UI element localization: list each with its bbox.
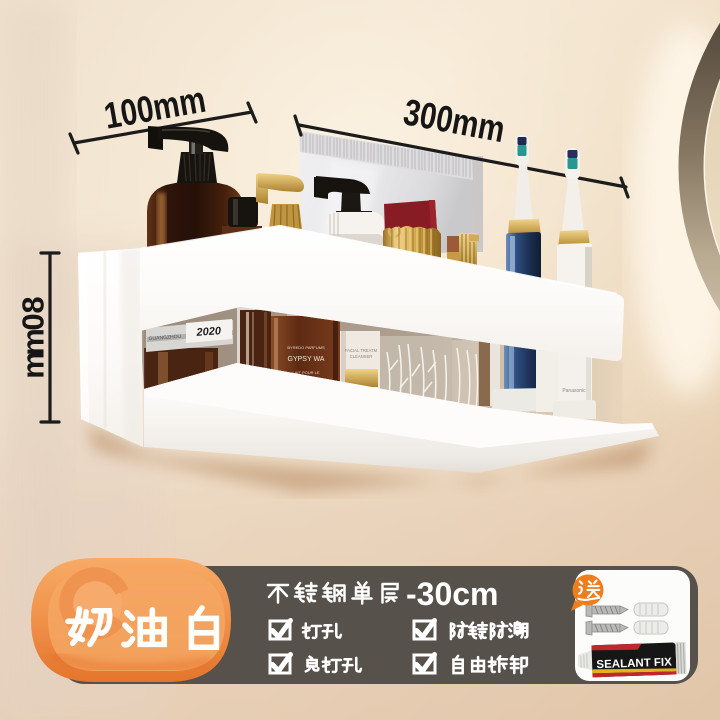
svg-text:BYREDO PARFUMS: BYREDO PARFUMS <box>287 345 325 350</box>
svg-text:GYPSY WA: GYPSY WA <box>288 356 325 363</box>
svg-text:CLEANSER: CLEANSER <box>350 354 373 359</box>
svg-text:2020: 2020 <box>195 325 222 339</box>
svg-text:0: 0 <box>16 313 51 330</box>
svg-text:Panasonic: Panasonic <box>562 388 586 394</box>
svg-text:FACIAL TREATM: FACIAL TREATM <box>345 348 378 353</box>
svg-text:-30cm: -30cm <box>406 576 499 612</box>
svg-text:m: m <box>16 351 51 379</box>
svg-text:8: 8 <box>16 296 51 313</box>
